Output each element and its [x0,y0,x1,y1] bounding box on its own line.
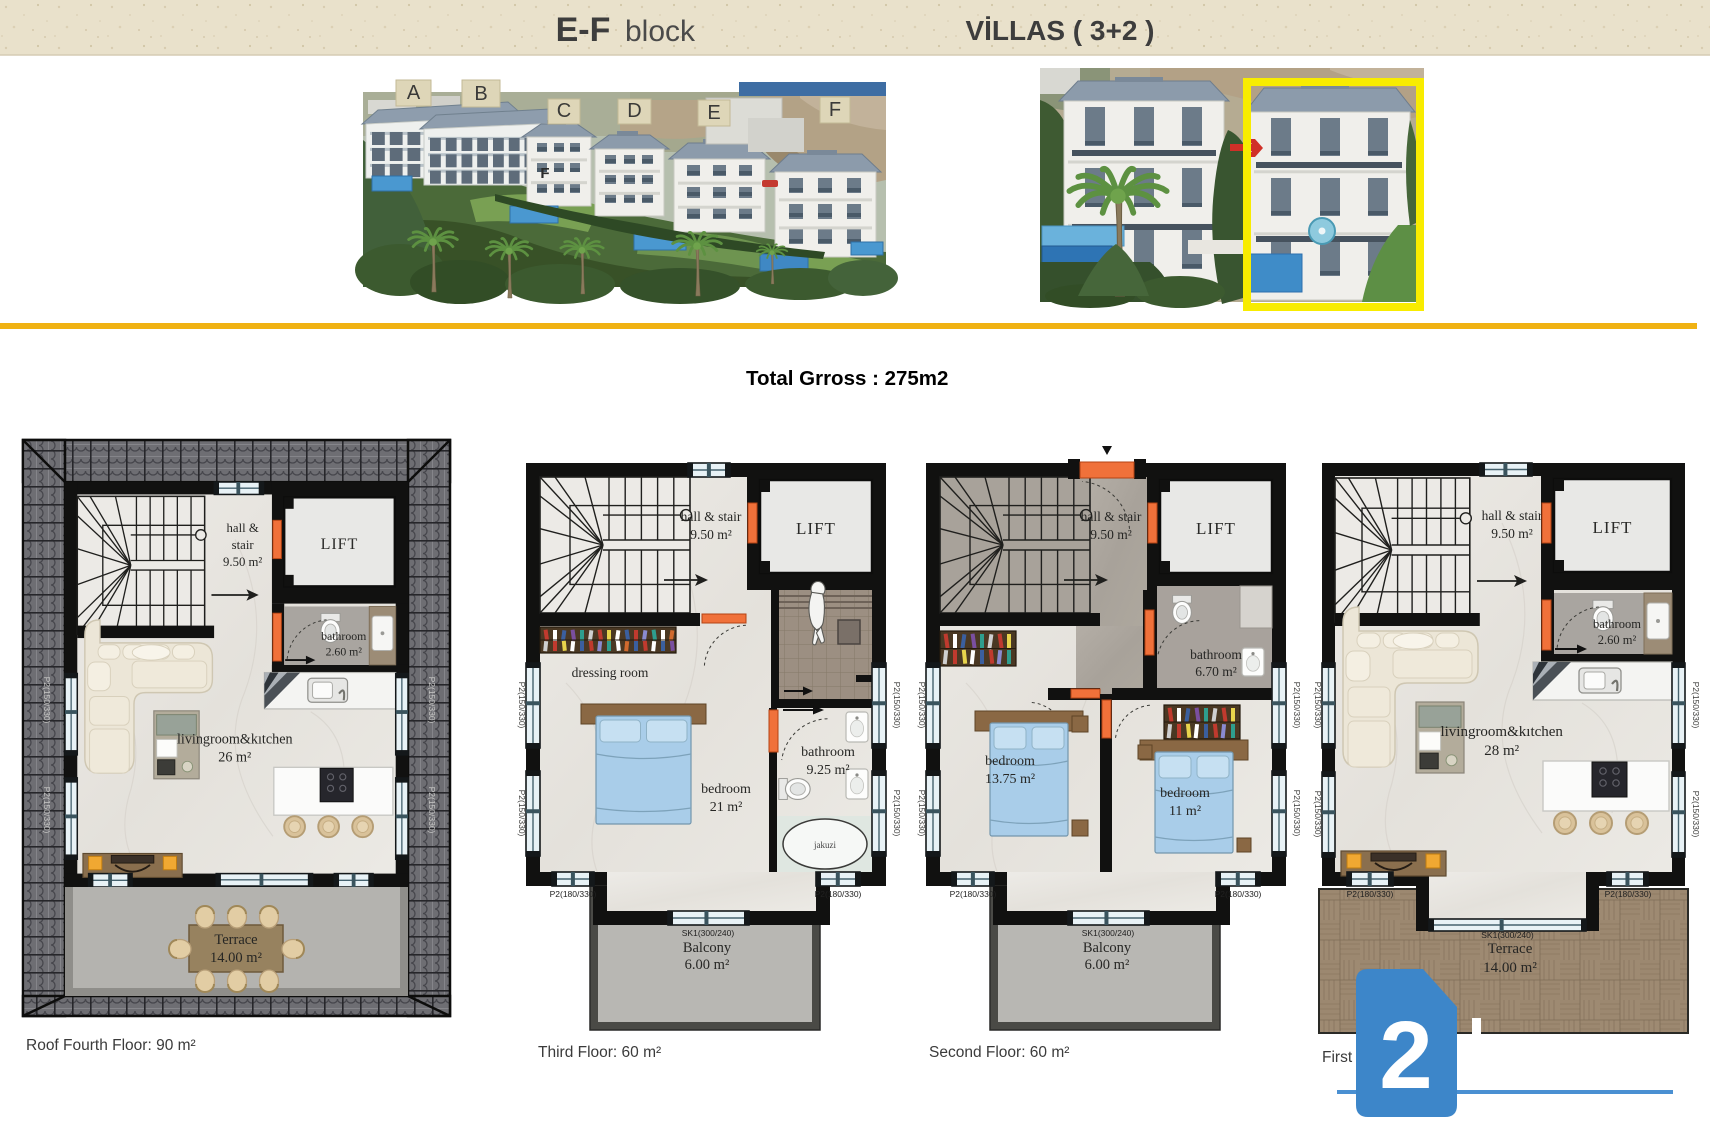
svg-text:VİLLAS ( 3+2 ): VİLLAS ( 3+2 ) [965,15,1154,46]
svg-text:P2(150/330): P2(150/330) [917,790,927,837]
svg-text:LIFT: LIFT [1196,519,1236,538]
svg-text:P2(150/330): P2(150/330) [517,790,527,837]
svg-text:F: F [829,99,841,121]
svg-text:bathroom: bathroom [1190,647,1242,662]
svg-text:Second Floor: 60 m²: Second Floor: 60 m² [929,1044,1069,1061]
svg-text:P2(150/330): P2(150/330) [427,787,437,834]
svg-text:A: A [407,82,421,104]
svg-text:Terrace: Terrace [1488,941,1533,957]
svg-text:block: block [625,15,696,48]
svg-text:C: C [557,100,571,122]
svg-text:9.50 m²: 9.50 m² [690,527,732,542]
svg-text:bedroom: bedroom [701,782,751,797]
svg-text:dressing room: dressing room [572,665,649,680]
svg-text:P2(150/330): P2(150/330) [42,677,52,724]
svg-text:P2(150/330): P2(150/330) [892,790,902,837]
svg-text:SK1(300/240): SK1(300/240) [1082,928,1135,938]
svg-text:Terrace: Terrace [214,932,257,948]
svg-text:6.00 m²: 6.00 m² [1085,957,1130,973]
svg-text:11 m²: 11 m² [1169,804,1201,819]
svg-text:9.50 m²: 9.50 m² [1491,526,1533,541]
svg-text:livingroom&kıtchen: livingroom&kıtchen [1440,724,1563,740]
svg-text:9.50 m²: 9.50 m² [1090,527,1132,542]
svg-text:bedroom: bedroom [1160,786,1210,801]
svg-text:P2(180/330): P2(180/330) [550,889,597,899]
svg-text:D: D [627,100,641,122]
svg-text:P2(150/330): P2(150/330) [1691,791,1701,838]
svg-text:Balcony: Balcony [683,940,732,956]
svg-text:26 m²: 26 m² [218,749,251,765]
svg-text:14.00 m²: 14.00 m² [1483,960,1537,976]
svg-text:jakuzi: jakuzi [813,840,836,850]
svg-text:P2(180/330): P2(180/330) [1605,889,1652,899]
svg-text:P2(180/330): P2(180/330) [1215,889,1262,899]
svg-text:6.00 m²: 6.00 m² [685,957,730,973]
svg-text:P2(150/330): P2(150/330) [892,682,902,729]
svg-text:P2(150/330): P2(150/330) [1313,682,1323,729]
svg-text:2.60 m²: 2.60 m² [1598,633,1637,647]
svg-text:P2(150/330): P2(150/330) [517,682,527,729]
svg-text:livingroom&kıtchen: livingroom&kıtchen [177,731,293,747]
svg-text:9.50 m²: 9.50 m² [223,555,262,569]
svg-text:P2(150/330): P2(150/330) [1292,790,1302,837]
svg-text:P2(180/330): P2(180/330) [950,889,997,899]
svg-text:13.75 m²: 13.75 m² [985,772,1035,787]
svg-text:hall & stair: hall & stair [1081,509,1142,524]
svg-text:P2(150/330): P2(150/330) [1292,682,1302,729]
svg-text:Total Grross : 275m2: Total Grross : 275m2 [746,367,948,390]
svg-text:E: E [707,102,720,124]
svg-text:hall &: hall & [227,521,259,535]
svg-text:LIFT: LIFT [321,536,359,553]
svg-text:Balcony: Balcony [1083,940,1132,956]
svg-text:6.70 m²: 6.70 m² [1195,664,1237,679]
svg-text:P2(180/330): P2(180/330) [815,889,862,899]
svg-text:14.00 m²: 14.00 m² [210,950,263,966]
svg-text:bedroom: bedroom [985,754,1035,769]
svg-text:P2(150/330): P2(150/330) [427,677,437,724]
svg-text:9.25 m²: 9.25 m² [806,763,849,778]
svg-text:F: F [540,165,549,182]
svg-text:hall & stair: hall & stair [681,509,742,524]
svg-text:stair: stair [232,538,255,552]
svg-text:21 m²: 21 m² [710,800,743,815]
svg-text:SK1(300/240): SK1(300/240) [1481,930,1534,940]
svg-text:First: First [1322,1049,1353,1066]
svg-text:LIFT: LIFT [796,519,836,538]
svg-text:E-F: E-F [556,11,611,49]
svg-text:Roof Fourth Floor: 90 m²: Roof Fourth Floor: 90 m² [26,1037,196,1054]
svg-text:P2(150/330): P2(150/330) [1313,791,1323,838]
svg-text:P2(150/330): P2(150/330) [1691,682,1701,729]
svg-text:P2(180/330): P2(180/330) [1347,889,1394,899]
svg-text:28 m²: 28 m² [1484,743,1519,759]
svg-text:hall & stair: hall & stair [1482,508,1543,523]
svg-text:Third Floor: 60 m²: Third Floor: 60 m² [538,1044,661,1061]
svg-text:bathroom: bathroom [1593,617,1641,631]
svg-text:P2(150/330): P2(150/330) [42,787,52,834]
svg-text:2.60 m²: 2.60 m² [326,644,363,658]
svg-text:P2(150/330): P2(150/330) [917,682,927,729]
svg-text:bathroom: bathroom [321,629,367,643]
svg-text:2: 2 [1379,1002,1432,1109]
svg-text:B: B [474,83,487,105]
svg-text:LIFT: LIFT [1593,518,1633,537]
svg-text:SK1(300/240): SK1(300/240) [682,928,735,938]
svg-text:bathroom: bathroom [801,745,855,760]
